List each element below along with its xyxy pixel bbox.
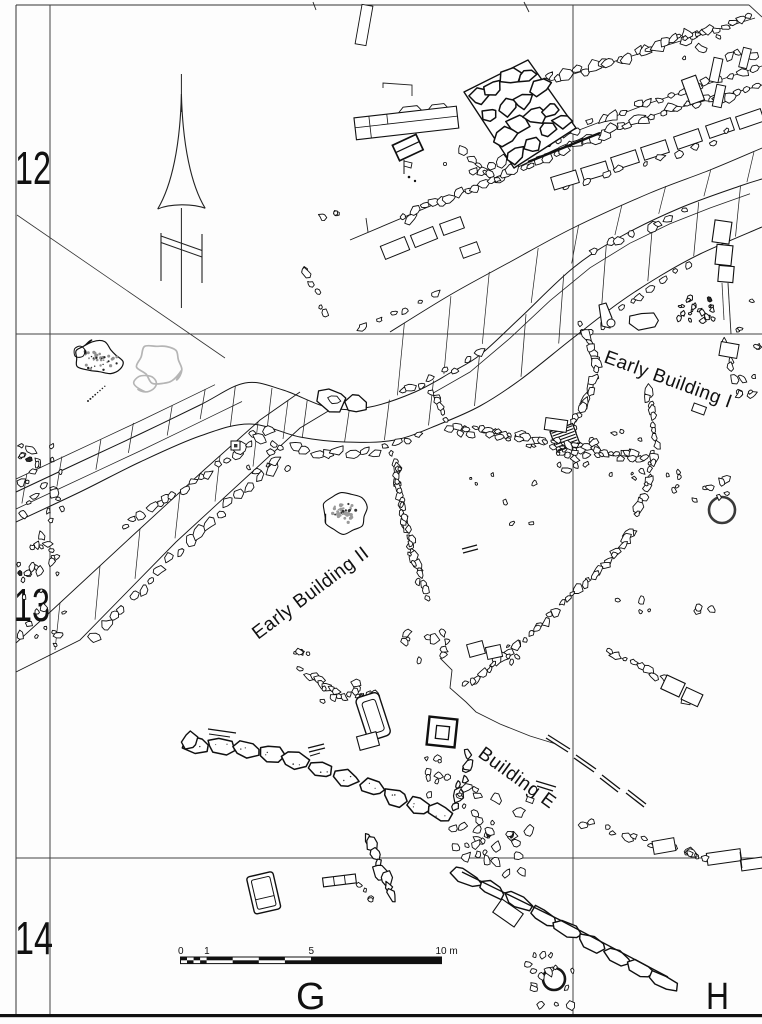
svg-text:0: 0 bbox=[178, 946, 184, 957]
svg-text:12: 12 bbox=[15, 142, 51, 194]
svg-text:10 m: 10 m bbox=[436, 946, 458, 957]
svg-text:1: 1 bbox=[204, 946, 210, 957]
svg-text:5: 5 bbox=[309, 946, 315, 957]
svg-text:G: G bbox=[296, 976, 326, 1018]
svg-text:14: 14 bbox=[15, 912, 53, 964]
svg-text:H: H bbox=[706, 976, 729, 1018]
